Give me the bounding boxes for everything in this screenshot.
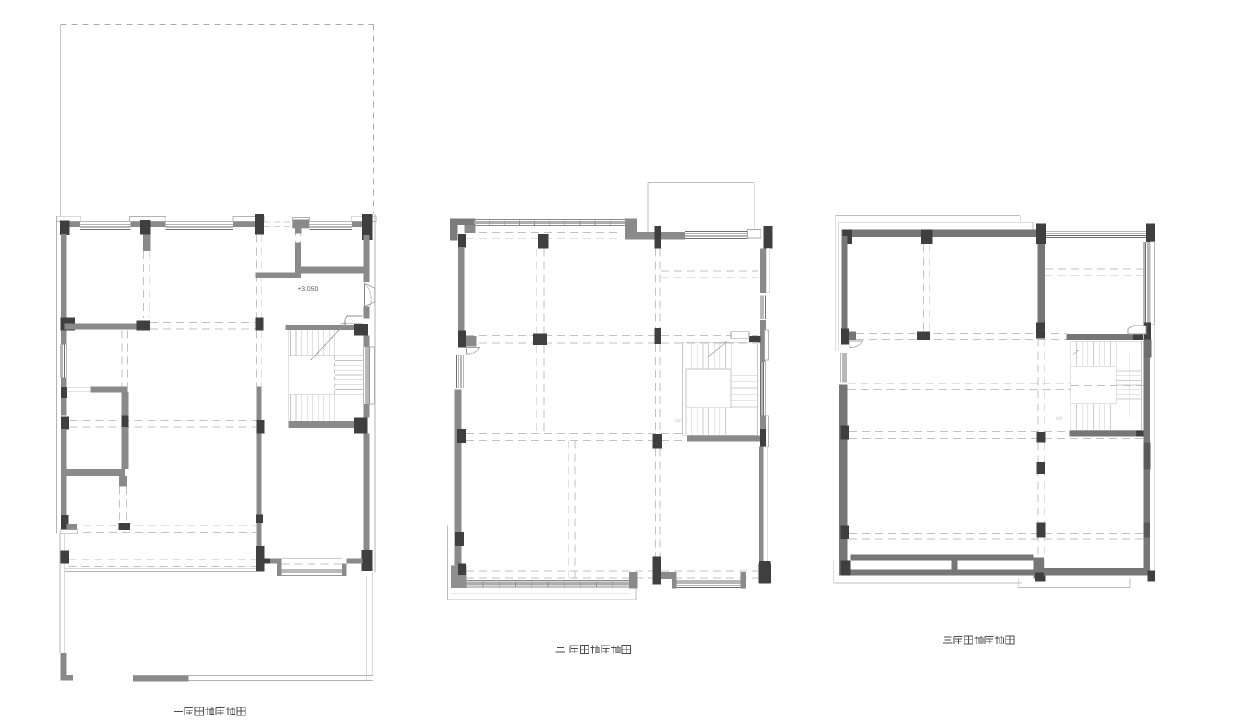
svg-text:120: 120 xyxy=(1056,416,1063,421)
svg-text:+3.050: +3.050 xyxy=(297,286,318,293)
svg-text:120: 120 xyxy=(675,418,682,423)
